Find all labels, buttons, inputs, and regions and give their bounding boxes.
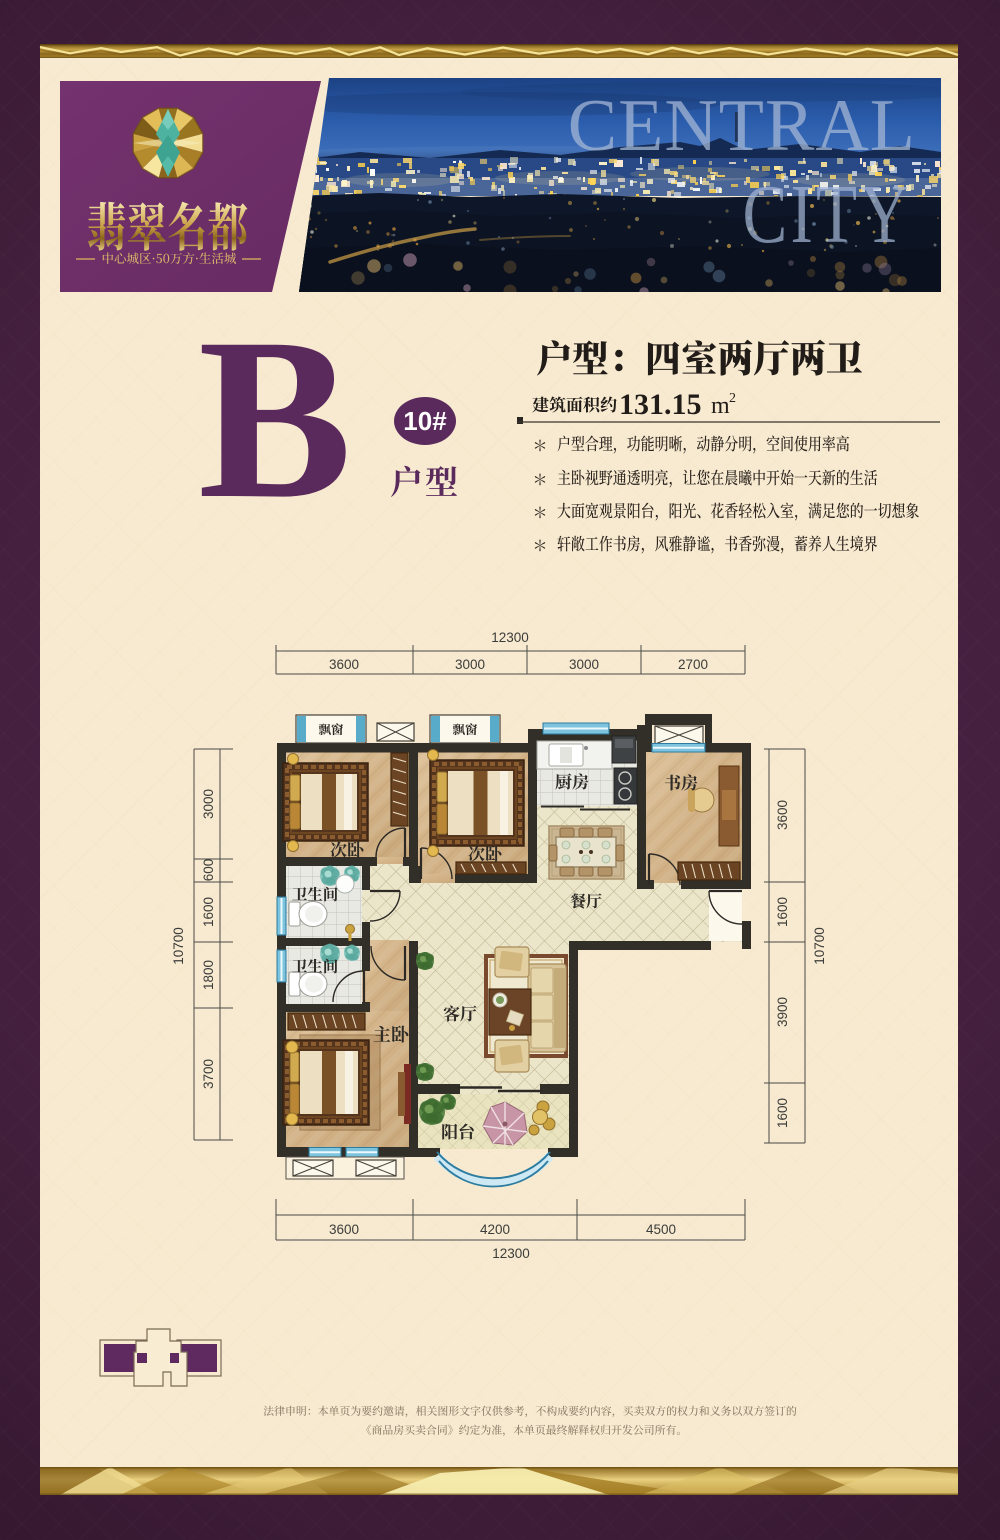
svg-text:1600: 1600	[775, 897, 790, 927]
svg-text:3600: 3600	[329, 657, 359, 672]
svg-text:3600: 3600	[775, 800, 790, 830]
svg-text:10700: 10700	[171, 927, 186, 965]
svg-text:1600: 1600	[201, 897, 216, 927]
svg-text:3700: 3700	[201, 1059, 216, 1089]
svg-text:1800: 1800	[201, 960, 216, 990]
svg-text:3600: 3600	[329, 1222, 359, 1237]
svg-text:1600: 1600	[775, 1098, 790, 1128]
svg-text:12300: 12300	[492, 1246, 530, 1261]
svg-text:4500: 4500	[646, 1222, 676, 1237]
svg-text:10700: 10700	[812, 927, 827, 965]
svg-text:2700: 2700	[678, 657, 708, 672]
svg-text:3000: 3000	[569, 657, 599, 672]
svg-text:4200: 4200	[480, 1222, 510, 1237]
svg-text:3000: 3000	[201, 789, 216, 819]
svg-text:3000: 3000	[455, 657, 485, 672]
svg-text:12300: 12300	[491, 630, 529, 645]
svg-text:600: 600	[201, 859, 216, 882]
svg-text:3900: 3900	[775, 997, 790, 1027]
